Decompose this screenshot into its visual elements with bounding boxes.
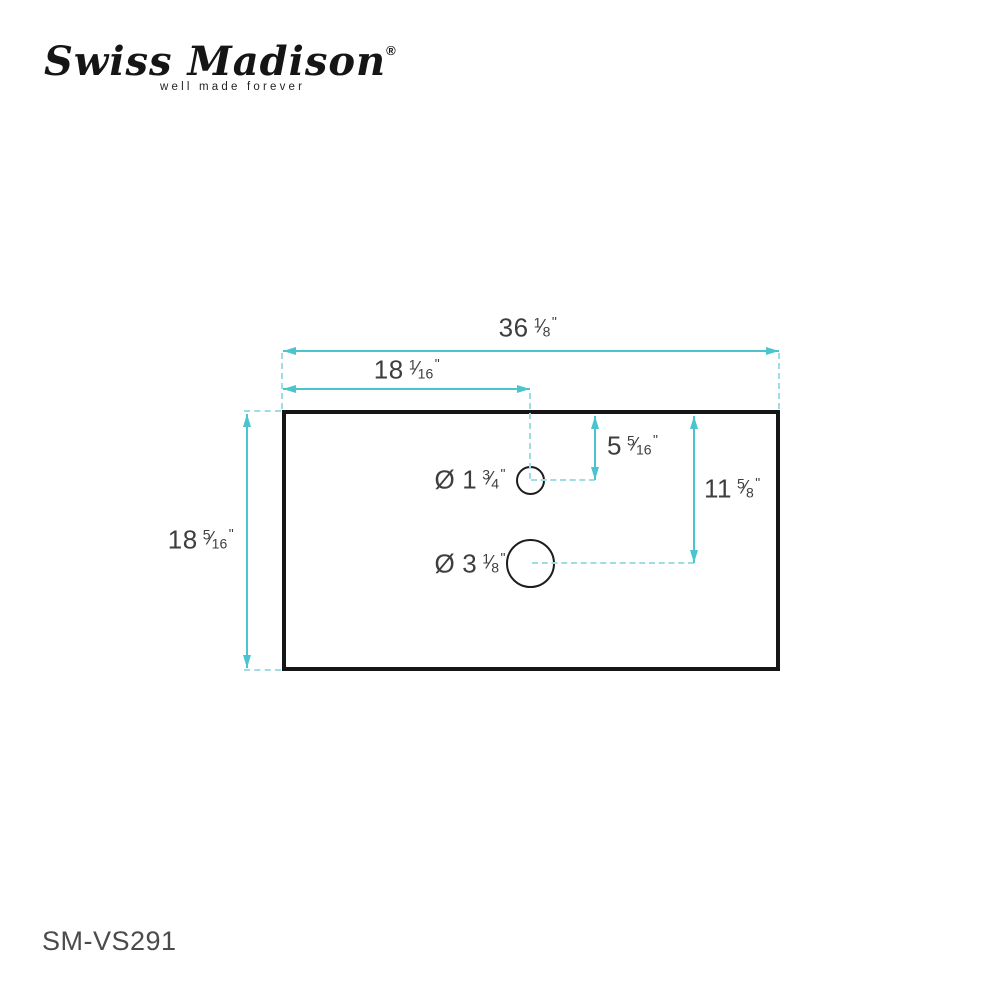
extension-line-top-right <box>778 353 780 409</box>
dim-label-large-hole-offset-y: 115⁄8" <box>704 474 761 505</box>
brand-wordmark: Swiss Madison® <box>44 38 397 85</box>
dim-line-overall-width <box>283 350 779 352</box>
dim-line-small-hole-offset-y <box>594 416 596 480</box>
extension-line-large-hole-horizontal <box>532 562 694 564</box>
inch-mark: " <box>229 526 234 542</box>
dim-label-small-hole-offset-y: 55⁄16" <box>607 431 659 462</box>
inch-mark: " <box>501 466 506 482</box>
dim-label-overall-width: 361⁄8" <box>499 313 558 344</box>
dim-whole: 18 <box>374 355 404 385</box>
dim-whole: 36 <box>499 313 529 343</box>
dim-label-hole-offset-x: 181⁄16" <box>374 355 440 386</box>
dim-whole: 18 <box>168 525 198 555</box>
dim-denominator: 8 <box>543 324 551 340</box>
registered-trademark-mark: ® <box>386 43 397 58</box>
dim-denominator: 4 <box>491 476 499 492</box>
dim-label-large-hole-diameter: Ø31⁄8" <box>435 549 506 580</box>
dim-line-overall-depth <box>246 414 248 668</box>
inch-mark: " <box>653 432 658 448</box>
extension-line-small-hole-horizontal <box>531 479 595 481</box>
extension-line-depth-bottom <box>244 669 281 671</box>
extension-line-depth-top <box>244 410 281 412</box>
dim-whole: 11 <box>704 474 732 504</box>
dim-label-small-hole-diameter: Ø13⁄4" <box>435 465 506 496</box>
inch-mark: " <box>501 550 506 566</box>
dim-whole: 3 <box>462 549 477 579</box>
diameter-symbol: Ø <box>435 465 456 495</box>
model-number: SM-VS291 <box>42 926 177 957</box>
dim-whole: 5 <box>607 431 622 461</box>
dim-denominator: 8 <box>746 485 754 501</box>
brand-name: Swiss Madison <box>44 38 386 85</box>
extension-line-small-hole-vertical <box>529 393 531 479</box>
dim-denominator: 16 <box>636 442 652 458</box>
dim-denominator: 16 <box>212 536 228 552</box>
dim-denominator: 8 <box>491 560 499 576</box>
dim-denominator: 16 <box>418 366 434 382</box>
dim-line-hole-offset-x <box>283 388 530 390</box>
inch-mark: " <box>755 475 760 491</box>
extension-line-top-left <box>281 353 283 409</box>
brand-logo: Swiss Madison® well made forever <box>44 38 397 93</box>
diameter-symbol: Ø <box>435 549 456 579</box>
spec-sheet-page: Swiss Madison® well made forever 361⁄8" … <box>0 0 1000 1000</box>
dim-label-overall-depth: 185⁄16" <box>168 525 234 556</box>
inch-mark: " <box>435 356 440 372</box>
dim-line-large-hole-offset-y <box>693 416 695 563</box>
dim-whole: 1 <box>462 465 477 495</box>
inch-mark: " <box>552 314 557 330</box>
